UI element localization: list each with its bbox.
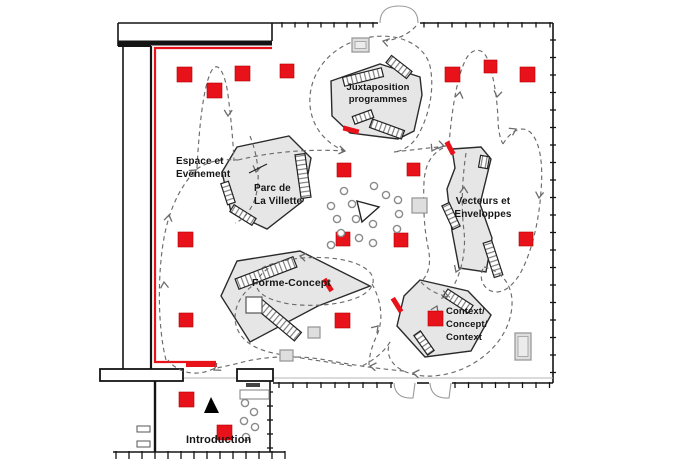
label-espace-et-evenement: Espace et Evenement	[176, 156, 252, 181]
direction-arrow	[493, 90, 502, 97]
display-bench	[479, 155, 490, 168]
dot-marker	[241, 399, 248, 406]
dot-marker	[348, 200, 355, 207]
counter-bar	[246, 383, 260, 387]
red-exhibit-square	[428, 311, 443, 326]
dot-marker	[352, 215, 359, 222]
door-swing-arc	[430, 383, 451, 398]
red-exhibit-square	[520, 67, 535, 82]
red-exhibit-square	[337, 163, 351, 177]
outlet-symbol	[137, 426, 150, 432]
circulation-path	[421, 148, 443, 282]
red-exhibit-square	[207, 83, 222, 98]
gray-display-case	[280, 350, 293, 361]
door-swing-arc	[380, 6, 399, 23]
direction-arrow	[224, 110, 232, 116]
dot-marker	[251, 423, 258, 430]
dot-marker	[369, 239, 376, 246]
direction-arrow	[164, 214, 173, 221]
direction-arrow	[371, 323, 381, 333]
dot-marker	[337, 229, 344, 236]
dot-marker	[369, 220, 376, 227]
red-exhibit-square	[519, 232, 533, 246]
red-exhibit-square	[179, 392, 194, 407]
shelf-outline	[240, 390, 269, 399]
label-context-concept-context: Context/ Concept/ Context	[446, 306, 510, 344]
direction-arrow	[412, 369, 419, 378]
direction-arrow	[369, 362, 376, 371]
circulation-path	[386, 26, 416, 41]
floor-plan: Espace et Evenement Juxtaposition progra…	[0, 0, 700, 469]
circulation-path	[369, 284, 381, 365]
red-exhibit-square	[179, 313, 193, 327]
gray-display-case-inner	[518, 337, 528, 357]
red-exhibit-square	[407, 163, 420, 176]
dot-marker	[250, 408, 257, 415]
outlet-symbol	[137, 441, 150, 447]
door-swing-arc	[394, 383, 415, 398]
red-exhibit-square	[177, 67, 192, 82]
gray-display-case-inner	[355, 42, 366, 49]
dot-marker	[382, 191, 389, 198]
dot-marker	[333, 215, 340, 222]
red-exhibit-square	[280, 64, 294, 78]
dot-marker	[393, 225, 400, 232]
white-display-square	[246, 297, 262, 313]
dot-marker	[394, 196, 401, 203]
floor-plan-drawing	[0, 0, 700, 469]
label-forme-concept: Forme-Concept	[252, 277, 362, 290]
label-juxtaposition-programmes: Juxtaposition programmes	[336, 82, 420, 106]
red-accent-wedge	[445, 141, 456, 156]
label-introduction: Introduction	[186, 434, 296, 448]
label-parc-de-la-villette: Parc de La Villette	[254, 183, 330, 208]
triangle-solid-introduction	[204, 397, 219, 413]
wall-segment	[237, 369, 273, 381]
dot-marker	[370, 182, 377, 189]
direction-arrow	[535, 192, 544, 199]
dot-marker	[240, 417, 247, 424]
gray-display-case	[308, 327, 320, 338]
red-exhibit-square	[484, 60, 497, 73]
direction-arrow	[160, 282, 168, 289]
red-exhibit-square	[394, 233, 408, 247]
dot-marker	[340, 187, 347, 194]
triangle-outline-center	[357, 201, 379, 222]
red-exhibit-square	[178, 232, 193, 247]
door-swing-arc	[399, 6, 418, 23]
red-exhibit-square	[445, 67, 460, 82]
direction-arrow	[455, 91, 464, 98]
direction-arrow	[382, 37, 390, 46]
label-vecteurs-et-enveloppes: Vecteurs et Enveloppes	[449, 196, 517, 221]
red-exhibit-square	[235, 66, 250, 81]
dot-marker	[355, 234, 362, 241]
circulation-path	[197, 67, 234, 168]
dot-marker	[395, 210, 402, 217]
dot-marker	[327, 241, 334, 248]
wall-segment	[100, 369, 183, 381]
gray-display-case	[412, 198, 427, 213]
red-exhibit-square	[335, 313, 350, 328]
